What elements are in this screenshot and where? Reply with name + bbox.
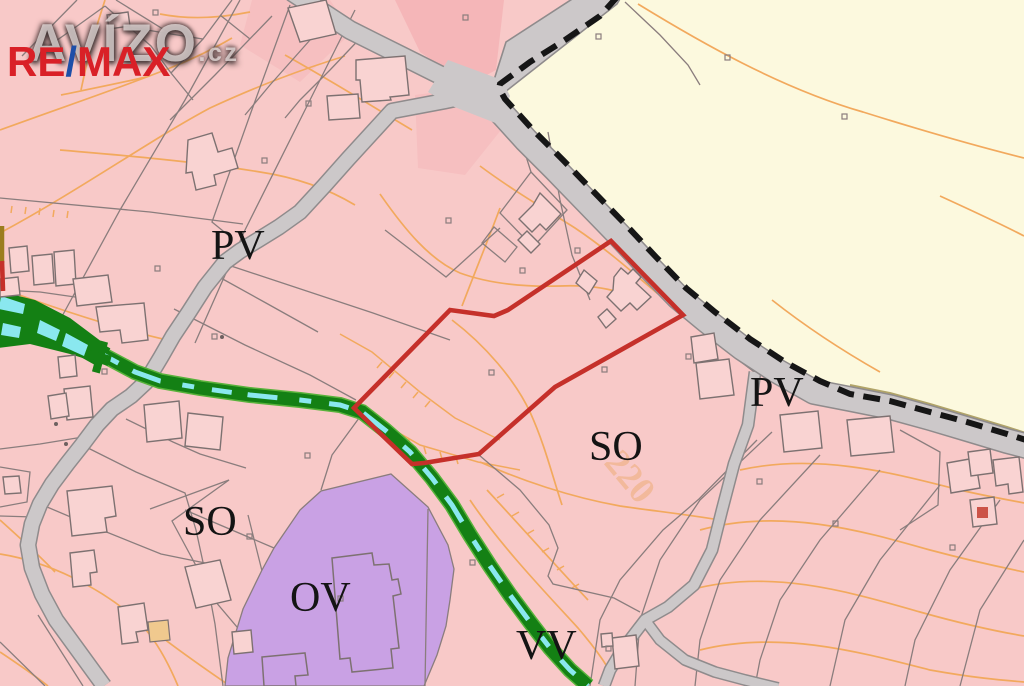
svg-text:OV: OV	[290, 575, 351, 621]
svg-text:PV: PV	[750, 370, 804, 416]
svg-text:SO: SO	[589, 424, 643, 470]
svg-text:PV: PV	[211, 223, 265, 269]
svg-text:VV: VV	[516, 623, 577, 669]
svg-text:SO: SO	[183, 499, 237, 545]
